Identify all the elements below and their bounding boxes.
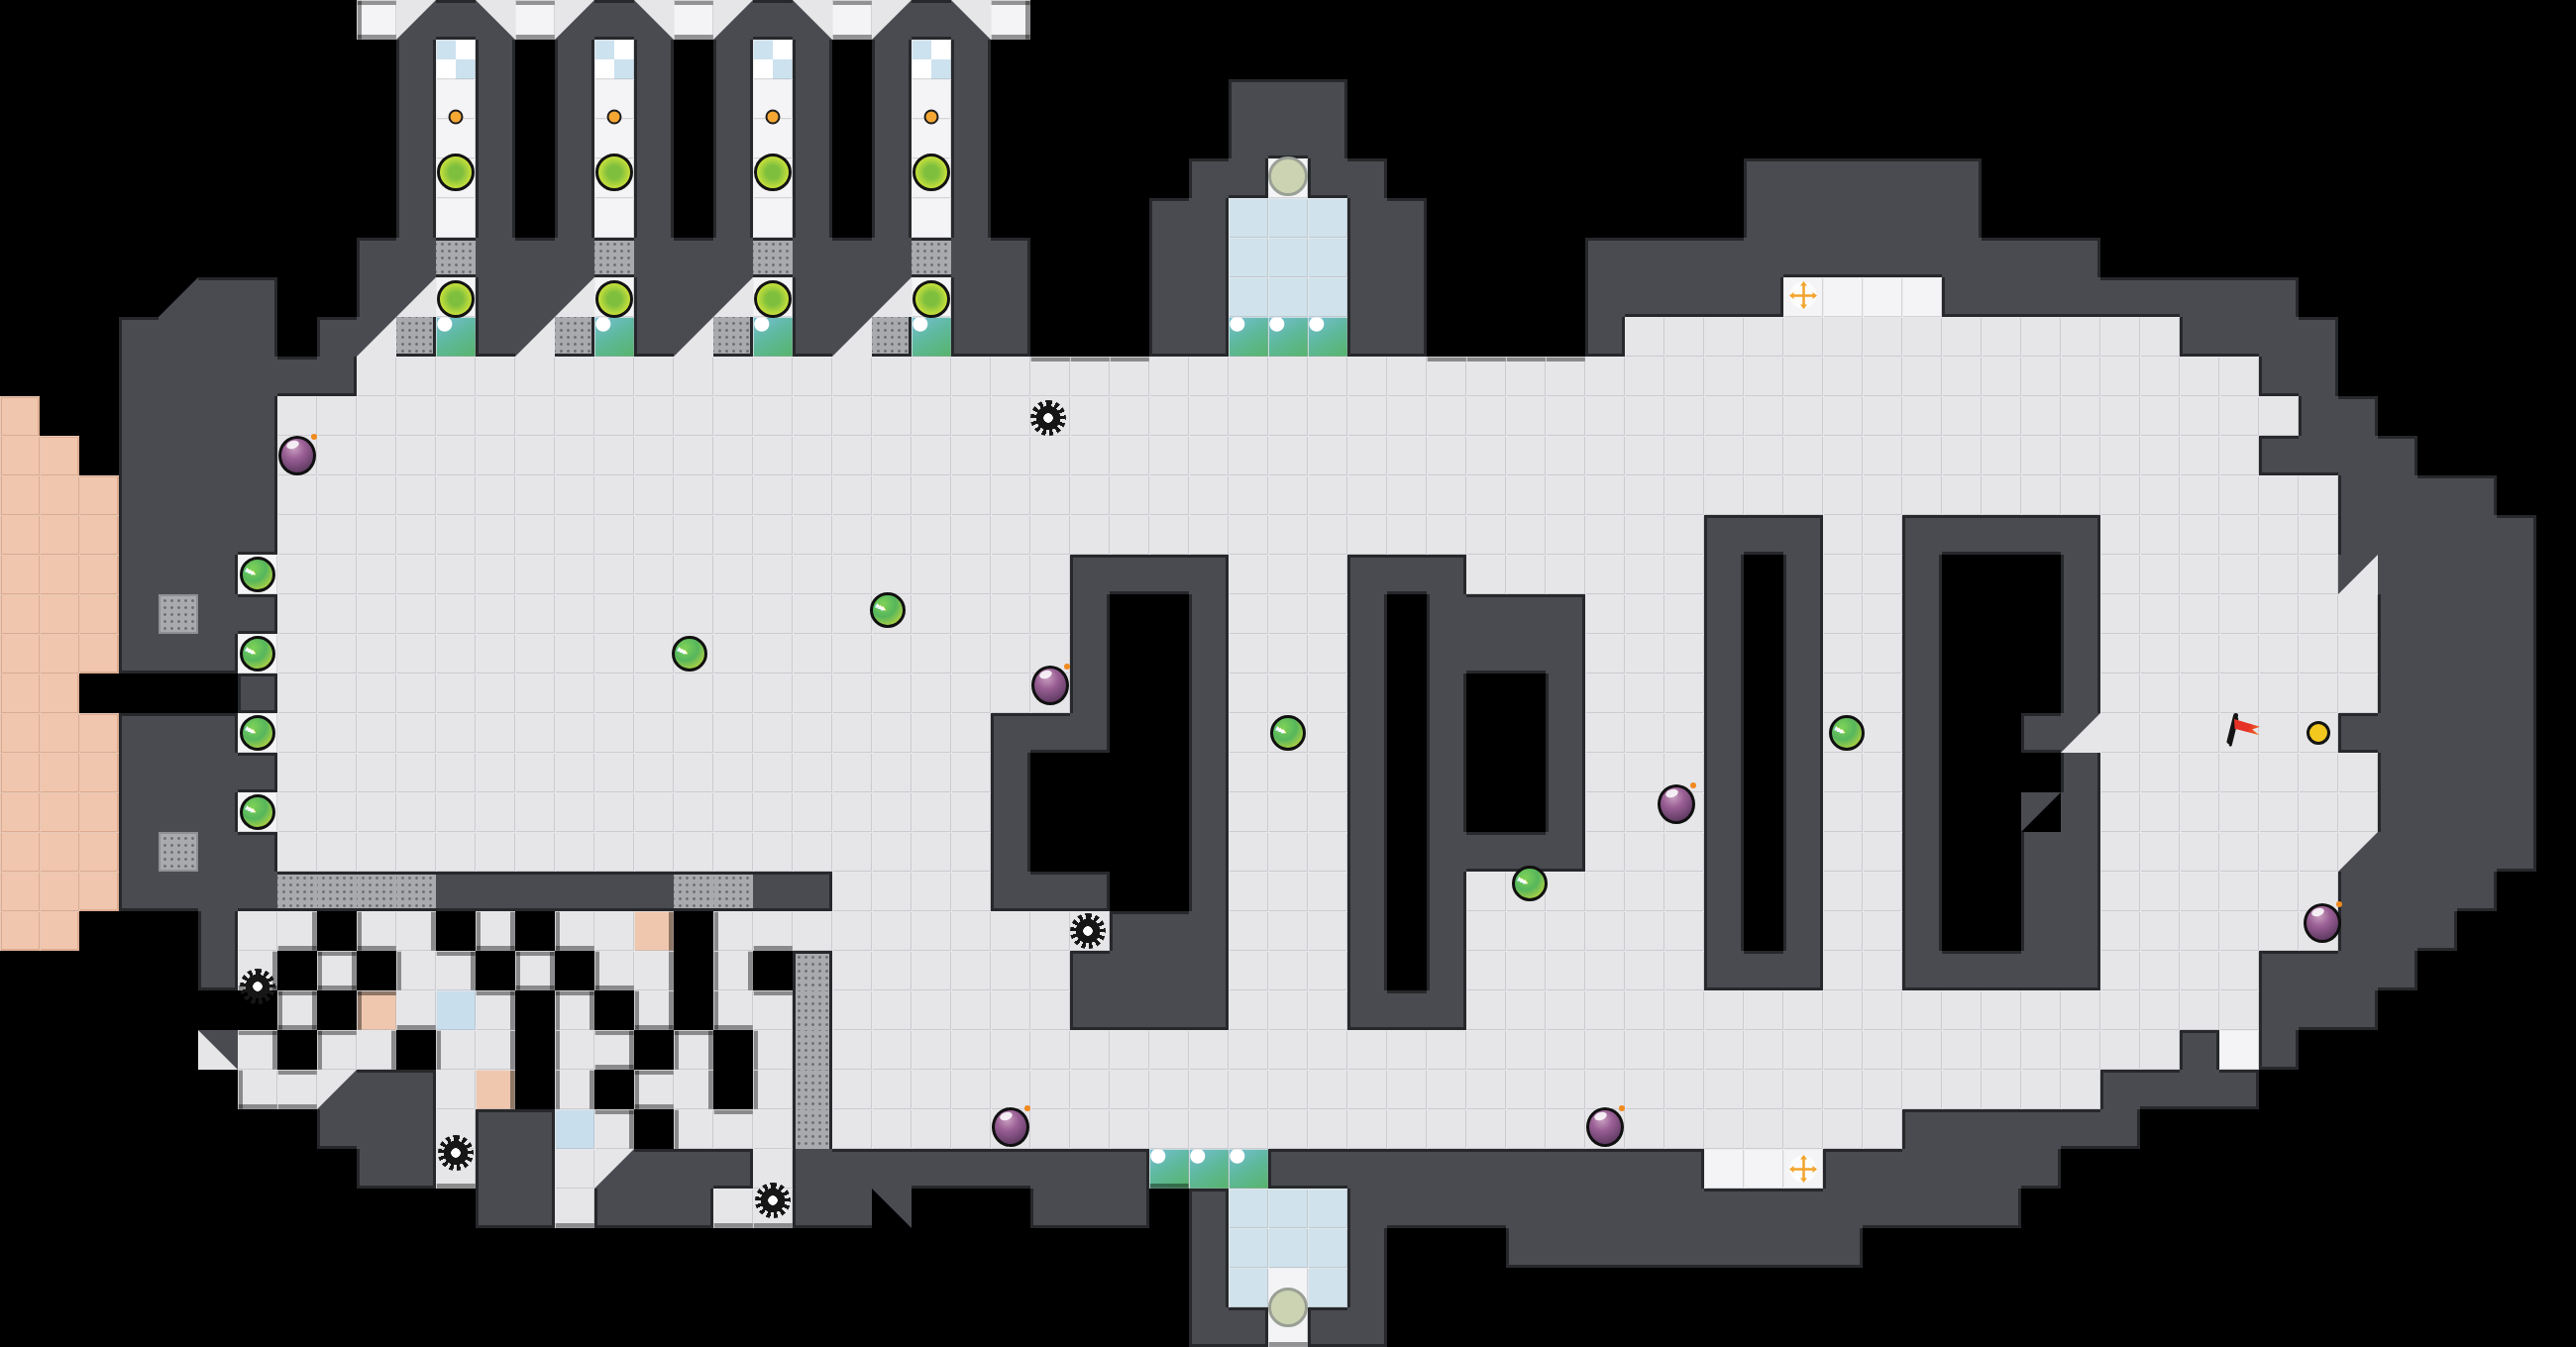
- tile-floor-tile: [1664, 515, 1704, 555]
- tile-hull-wall: [1704, 753, 1744, 792]
- tile-wall-diagonal-sw: [634, 0, 674, 40]
- tile-floor-tile: [2100, 990, 2140, 1030]
- tile-floor-tile: [2180, 713, 2219, 753]
- tile-floor-tile: [2021, 357, 2061, 396]
- tile-floor-tile: [912, 792, 951, 832]
- tile-hull-wall: [1902, 198, 1942, 238]
- tile-console-screen[interactable]: [1149, 1149, 1189, 1189]
- tile-floor-tile: [1625, 515, 1664, 555]
- tile-floor-tile: [515, 475, 555, 515]
- tile-floor-tile: [1585, 951, 1625, 990]
- tile-floor-tile: [1863, 911, 1902, 951]
- chevron-orb-icon[interactable]: ▸▸▸: [1829, 715, 1865, 751]
- tile-hull-wall: [1347, 317, 1387, 357]
- tile-floor-tile: [1902, 396, 1942, 436]
- gear-item-icon[interactable]: [755, 1183, 791, 1218]
- tile-floor-tile: [238, 911, 277, 951]
- tile-pod-glass: [1229, 1228, 1268, 1268]
- tile-hull-wall: [2061, 753, 2100, 792]
- tile-vent-grate: [594, 238, 634, 277]
- tile-hull-wall: [119, 515, 159, 555]
- tile-floor-tile: [1704, 317, 1744, 357]
- tile-floor-tile: [753, 673, 793, 713]
- tile-floor-tile: [2259, 872, 2299, 911]
- tile-console-screen[interactable]: [912, 317, 951, 357]
- tile-floor-tile: [2180, 594, 2219, 634]
- tile-hull-wall: [1625, 238, 1664, 277]
- tile-floor-tile: [674, 594, 713, 634]
- tile-floor-tile: [515, 713, 555, 753]
- tile-hull-wall: [476, 238, 515, 277]
- tile-floor-tile: [674, 436, 713, 475]
- tile-hull-wall: [2497, 792, 2536, 832]
- tile-floor-tile: [674, 673, 713, 713]
- tile-hull-wall: [238, 832, 277, 872]
- tile-hull-wall: [2457, 792, 2497, 832]
- tile-floor-tile: [2180, 673, 2219, 713]
- tile-floor-tile: [1585, 475, 1625, 515]
- tile-vent-grate: [159, 594, 198, 634]
- tile-floor-tile: [555, 832, 594, 872]
- chevron-orb-icon[interactable]: ▸▸▸: [240, 715, 275, 751]
- tile-hull-wall: [1347, 594, 1387, 634]
- tile-floor-tile: [1823, 357, 1863, 396]
- tile-floor-tile: [1863, 713, 1902, 753]
- tile-floor-tile: [1783, 475, 1823, 515]
- tile-console-screen[interactable]: [1308, 317, 1347, 357]
- tile-floor-tile: [872, 673, 912, 713]
- tile-hull-wall: [1902, 753, 1942, 792]
- tile-floor-tile: [317, 713, 357, 753]
- tile-floor-tile: [1268, 1070, 1308, 1109]
- tile-floor-tile: [2061, 475, 2100, 515]
- tile-hull-wall: [1110, 555, 1149, 594]
- tile-floor-tile: [713, 832, 753, 872]
- tile-floor-tile: [2061, 396, 2100, 436]
- tile-floor-tile: [2140, 673, 2180, 713]
- tile-pink-dock-tile: [0, 713, 40, 753]
- tile-hull-wall: [396, 1070, 436, 1109]
- tile-floor-tile: [2219, 792, 2259, 832]
- tile-floor-tile: [1783, 436, 1823, 475]
- tile-floor-tile: [1863, 1030, 1902, 1070]
- gear-item-icon[interactable]: [1030, 400, 1066, 436]
- tile-floor-tile: [1030, 990, 1070, 1030]
- tile-floor-tile: [753, 634, 793, 673]
- tile-floor-tile: [1664, 872, 1704, 911]
- tile-floor-tile: [872, 436, 912, 475]
- tile-hull-wall: [476, 79, 515, 119]
- tile-hull-wall: [2378, 555, 2417, 594]
- tile-hull-wall: [1030, 1149, 1070, 1189]
- tile-floor-tile: [1902, 1030, 1942, 1070]
- tile-hull-wall: [1625, 1189, 1664, 1228]
- tile-floor-tile: [2299, 475, 2338, 515]
- tile-floor-tile: [1347, 475, 1387, 515]
- tile-floor-tile: [1229, 753, 1268, 792]
- tile-hull-wall: [1704, 911, 1744, 951]
- tile-white-tile: [674, 0, 713, 40]
- tile-floor-tile: [1585, 792, 1625, 832]
- tile-floor-tile: [476, 990, 515, 1030]
- tile-hull-wall: [872, 79, 912, 119]
- tile-floor-tile: [2299, 594, 2338, 634]
- tile-floor-tile: [2259, 396, 2299, 436]
- tile-hull-wall: [1070, 872, 1110, 911]
- tile-checker-glass: [912, 40, 951, 79]
- tile-floor-tile: [951, 990, 991, 1030]
- tile-floor-tile: [1585, 673, 1625, 713]
- tile-vent-grate: [277, 872, 317, 911]
- tile-floor-tile: [2140, 872, 2180, 911]
- tile-floor-tile: [1546, 475, 1585, 515]
- chevron-orb-icon[interactable]: ▸▸▸: [870, 592, 906, 628]
- tile-hull-wall: [793, 872, 832, 911]
- tile-floor-tile: [1466, 515, 1506, 555]
- tile-white-tile: [1902, 277, 1942, 317]
- tile-hull-wall: [1704, 832, 1744, 872]
- tile-hull-wall: [238, 872, 277, 911]
- tile-hull-wall: [198, 911, 238, 951]
- tile-console-screen[interactable]: [594, 317, 634, 357]
- tile-floor-tile: [872, 1030, 912, 1070]
- tile-hull-wall: [1189, 713, 1229, 753]
- tile-floor-tile: [991, 555, 1030, 594]
- tile-hull-wall: [713, 238, 753, 277]
- tile-floor-tile: [1427, 475, 1466, 515]
- tile-floor-tile: [713, 396, 753, 436]
- bomb-item-icon[interactable]: [992, 1107, 1029, 1147]
- tile-floor-tile: [674, 357, 713, 396]
- tile-hull-wall: [119, 475, 159, 515]
- tile-floor-tile: [1149, 475, 1189, 515]
- tile-white-tile: [436, 119, 476, 158]
- tile-hull-wall: [2338, 436, 2378, 475]
- tile-floor-tile: [753, 832, 793, 872]
- tile-floor-tile: [674, 555, 713, 594]
- tile-hull-wall: [198, 277, 238, 317]
- tile-hull-wall: [555, 872, 594, 911]
- tile-hull-wall: [1030, 1189, 1070, 1228]
- tile-floor-tile: [2299, 515, 2338, 555]
- tile-floor-tile: [2100, 832, 2140, 872]
- tile-floor-tile: [2100, 713, 2140, 753]
- tile-hull-wall: [2378, 753, 2417, 792]
- tile-floor-tile: [1149, 1109, 1189, 1149]
- chevron-orb-icon[interactable]: ▸▸▸: [1512, 866, 1548, 901]
- tile-floor-tile: [1823, 951, 1863, 990]
- tile-floor-tile: [793, 357, 832, 396]
- tile-wall-diagonal-nw: [555, 277, 594, 317]
- tile-hull-wall: [1427, 951, 1466, 990]
- tile-floor-tile: [1308, 753, 1347, 792]
- chevron-orb-icon[interactable]: ▸▸▸: [240, 557, 275, 592]
- tile-floor-tile: [1744, 1109, 1783, 1149]
- tile-hull-wall: [2417, 673, 2457, 713]
- tile-hull-wall: [634, 872, 674, 911]
- tile-hull-wall: [1427, 792, 1466, 832]
- tile-hull-wall: [1189, 951, 1229, 990]
- tile-floor-tile: [277, 555, 317, 594]
- tile-wall-diagonal-ne: [872, 1189, 912, 1228]
- tile-floor-tile: [1427, 515, 1466, 555]
- tile-hull-wall: [198, 634, 238, 673]
- gear-item-icon[interactable]: [240, 969, 275, 1004]
- tile-hull-wall: [1744, 238, 1783, 277]
- chevron-orb-icon[interactable]: ▸▸▸: [240, 794, 275, 830]
- tile-floor-tile: [1229, 832, 1268, 872]
- tile-hull-wall: [1070, 673, 1110, 713]
- chevron-arrows-icon: ▸▸▸: [244, 802, 257, 815]
- tile-floor-tile: [1585, 1070, 1625, 1109]
- tile-floor-tile: [832, 753, 872, 792]
- tile-hull-wall: [2061, 277, 2100, 317]
- yellow-dot-item-icon[interactable]: [2307, 721, 2330, 745]
- tile-wall-diagonal-nw: [357, 317, 396, 357]
- bomb-item-icon[interactable]: [278, 436, 316, 475]
- tile-hull-wall: [1902, 238, 1942, 277]
- tile-floor-tile: [2021, 317, 2061, 357]
- tile-hull-wall: [1982, 951, 2021, 990]
- tile-console-screen[interactable]: [436, 317, 476, 357]
- tile-hull-wall: [1783, 792, 1823, 832]
- bomb-item-icon[interactable]: [2304, 903, 2341, 943]
- tile-floor-tile: [634, 515, 674, 555]
- tile-floor-tile: [2021, 475, 2061, 515]
- tile-floor-tile: [1466, 396, 1506, 436]
- tile-hull-wall: [1189, 594, 1229, 634]
- tile-floor-tile: [1704, 1030, 1744, 1070]
- tile-floor-tile: [555, 634, 594, 673]
- tile-floor-tile: [991, 475, 1030, 515]
- gear-item-icon[interactable]: [438, 1135, 474, 1171]
- tile-hull-wall: [2417, 792, 2457, 832]
- tile-floor-tile: [872, 1109, 912, 1149]
- goal-flag-icon[interactable]: [2223, 713, 2263, 753]
- tile-floor-tile: [2100, 475, 2140, 515]
- tile-floor-tile: [515, 555, 555, 594]
- tile-hull-wall: [1902, 792, 1942, 832]
- tile-floor-tile: [476, 396, 515, 436]
- tile-hull-wall: [436, 872, 476, 911]
- tile-hull-wall: [1704, 792, 1744, 832]
- tile-hull-wall: [1585, 1189, 1625, 1228]
- tile-floor-tile: [1427, 396, 1466, 436]
- tile-floor-tile: [1863, 673, 1902, 713]
- tile-console-screen[interactable]: [1229, 317, 1268, 357]
- tile-floor-tile: [1268, 555, 1308, 594]
- tile-floor-tile: [753, 1109, 793, 1149]
- tile-hull-wall: [2299, 357, 2338, 396]
- tile-hull-wall: [277, 357, 317, 396]
- tile-wall-diagonal-nw: [832, 317, 872, 357]
- tile-hull-wall: [674, 1149, 713, 1189]
- tile-floor-tile: [277, 634, 317, 673]
- tile-hull-wall: [1387, 1189, 1427, 1228]
- tile-floor-tile: [1070, 357, 1110, 396]
- tile-floor-tile: [1744, 436, 1783, 475]
- tile-pink-dock-tile: [40, 911, 79, 951]
- tile-floor-tile: [2259, 792, 2299, 832]
- tile-hull-wall: [1982, 1149, 2021, 1189]
- tile-hull-wall: [951, 158, 991, 198]
- tile-floor-tile: [555, 515, 594, 555]
- tile-floor-tile: [1664, 832, 1704, 872]
- tile-floor-tile: [753, 594, 793, 634]
- tile-console-screen[interactable]: [1229, 1149, 1268, 1189]
- tile-floor-tile: [1942, 317, 1982, 357]
- tile-floor-tile: [396, 396, 436, 436]
- tile-floor-tile: [912, 634, 951, 673]
- tile-floor-tile: [1625, 951, 1664, 990]
- tile-floor-tile: [2219, 475, 2259, 515]
- tile-floor-tile: [713, 713, 753, 753]
- tile-hull-wall: [753, 0, 793, 40]
- tile-hull-wall: [1704, 555, 1744, 594]
- tile-floor-tile: [793, 713, 832, 753]
- tile-hull-wall: [198, 396, 238, 436]
- tile-hull-wall: [515, 1149, 555, 1189]
- tile-floor-tile: [634, 1070, 674, 1109]
- tile-hull-wall: [2259, 357, 2299, 396]
- tile-floor-tile: [1268, 832, 1308, 872]
- tile-pink-dock-tile: [79, 792, 119, 832]
- tile-hull-wall: [1347, 673, 1387, 713]
- tile-hull-wall: [1744, 951, 1783, 990]
- tile-hull-wall: [1149, 317, 1189, 357]
- tile-floor-tile: [1466, 436, 1506, 475]
- tile-pink-dock-tile: [0, 872, 40, 911]
- tile-floor-tile: [1625, 317, 1664, 357]
- tile-floor-tile: [1268, 990, 1308, 1030]
- bomb-item-icon[interactable]: [1658, 784, 1695, 824]
- chevron-orb-icon[interactable]: ▸▸▸: [240, 636, 275, 672]
- tile-hull-wall: [1347, 198, 1387, 238]
- tile-floor-tile: [2338, 792, 2378, 832]
- tile-floor-tile: [476, 792, 515, 832]
- chevron-orb-icon[interactable]: ▸▸▸: [672, 636, 707, 672]
- tile-floor-tile: [1268, 475, 1308, 515]
- tile-hull-wall: [1427, 555, 1466, 594]
- tile-floor-tile: [1427, 1070, 1466, 1109]
- tile-hull-wall: [1347, 158, 1387, 198]
- tile-hull-wall: [396, 40, 436, 79]
- gear-item-icon[interactable]: [1070, 913, 1106, 949]
- tile-hull-wall: [2417, 753, 2457, 792]
- tile-hull-wall: [1546, 1228, 1585, 1268]
- tile-floor-tile: [317, 832, 357, 872]
- tile-floor-tile: [634, 475, 674, 515]
- tile-blue-tile: [436, 990, 476, 1030]
- tile-floor-tile: [555, 1070, 594, 1109]
- tile-hull-wall: [198, 951, 238, 990]
- tile-floor-tile: [713, 673, 753, 713]
- tile-hull-wall: [476, 872, 515, 911]
- chevron-orb-icon[interactable]: ▸▸▸: [1270, 715, 1306, 751]
- tile-hull-wall: [2378, 832, 2417, 872]
- tile-floor-tile: [1704, 990, 1744, 1030]
- tile-peach-tile: [634, 911, 674, 951]
- tile-floor-tile: [1585, 555, 1625, 594]
- tile-wall-diagonal-se: [594, 1149, 634, 1189]
- tile-hull-wall: [1783, 753, 1823, 792]
- tile-floor-tile: [2180, 832, 2219, 872]
- tile-hull-wall: [1783, 911, 1823, 951]
- tile-wall-diagonal-se: [2338, 832, 2378, 872]
- tile-hull-wall: [198, 832, 238, 872]
- tile-hull-wall: [1902, 1189, 1942, 1228]
- tile-hull-wall: [1902, 713, 1942, 753]
- tile-floor-tile: [674, 753, 713, 792]
- tile-floor-tile: [396, 555, 436, 594]
- tile-pink-dock-tile: [40, 515, 79, 555]
- tile-hull-wall: [1704, 1189, 1744, 1228]
- tile-floor-tile: [2180, 515, 2219, 555]
- tile-console-screen[interactable]: [1268, 317, 1308, 357]
- tile-wall-diagonal-nw: [872, 277, 912, 317]
- tile-floor-tile: [832, 990, 872, 1030]
- ship-map: ▸▸▸▸▸▸▸▸▸▸▸▸▸▸▸▸▸▸▸▸▸▸▸▸▸▸▸: [0, 0, 2576, 1347]
- tile-console-screen[interactable]: [1189, 1149, 1229, 1189]
- tile-floor-tile: [951, 357, 991, 396]
- tile-floor-tile: [1585, 436, 1625, 475]
- tile-floor-tile: [832, 436, 872, 475]
- tile-hull-wall: [476, 1109, 515, 1149]
- bomb-item-icon[interactable]: [1031, 666, 1069, 705]
- tile-floor-tile: [1744, 1030, 1783, 1070]
- tile-hull-wall: [1387, 317, 1427, 357]
- tile-hull-wall: [1783, 238, 1823, 277]
- chevron-arrows-icon: ▸▸▸: [1516, 874, 1529, 886]
- tile-floor-tile: [1546, 1030, 1585, 1070]
- tile-hull-wall: [2457, 594, 2497, 634]
- bomb-item-icon[interactable]: [1586, 1107, 1624, 1147]
- tile-floor-tile: [277, 1070, 317, 1109]
- tile-floor-tile: [2299, 832, 2338, 872]
- tile-hull-wall: [1387, 990, 1427, 1030]
- tile-hull-wall: [1308, 79, 1347, 119]
- tile-pink-dock-tile: [79, 713, 119, 753]
- tile-floor-tile: [1863, 555, 1902, 594]
- tile-floor-tile: [634, 713, 674, 753]
- tile-hull-wall: [1546, 832, 1585, 872]
- tile-hull-wall: [1942, 515, 1982, 555]
- tile-hull-wall: [1268, 1149, 1308, 1189]
- tile-floor-tile: [555, 911, 594, 951]
- tile-hull-wall: [317, 317, 357, 357]
- tile-console-screen[interactable]: [753, 317, 793, 357]
- tile-floor-tile: [753, 1030, 793, 1070]
- tile-floor-tile: [396, 436, 436, 475]
- tile-floor-tile: [396, 951, 436, 990]
- tile-pod-glass: [1229, 1189, 1268, 1228]
- tile-hull-wall: [1783, 515, 1823, 555]
- tile-hull-wall: [119, 713, 159, 753]
- tile-floor-tile: [674, 396, 713, 436]
- tile-floor-tile: [793, 436, 832, 475]
- tile-hull-wall: [1308, 1307, 1347, 1347]
- tile-floor-tile: [1229, 515, 1268, 555]
- tile-hull-wall: [1347, 1228, 1387, 1268]
- tile-white-tile: [753, 198, 793, 238]
- tile-hull-wall: [2378, 872, 2417, 911]
- tile-floor-tile: [1347, 436, 1387, 475]
- tile-hull-wall: [2457, 555, 2497, 594]
- tile-floor-tile: [2299, 792, 2338, 832]
- tile-hull-wall: [1902, 158, 1942, 198]
- tile-floor-tile: [1189, 1070, 1229, 1109]
- pod-button-dot-icon: [449, 110, 464, 125]
